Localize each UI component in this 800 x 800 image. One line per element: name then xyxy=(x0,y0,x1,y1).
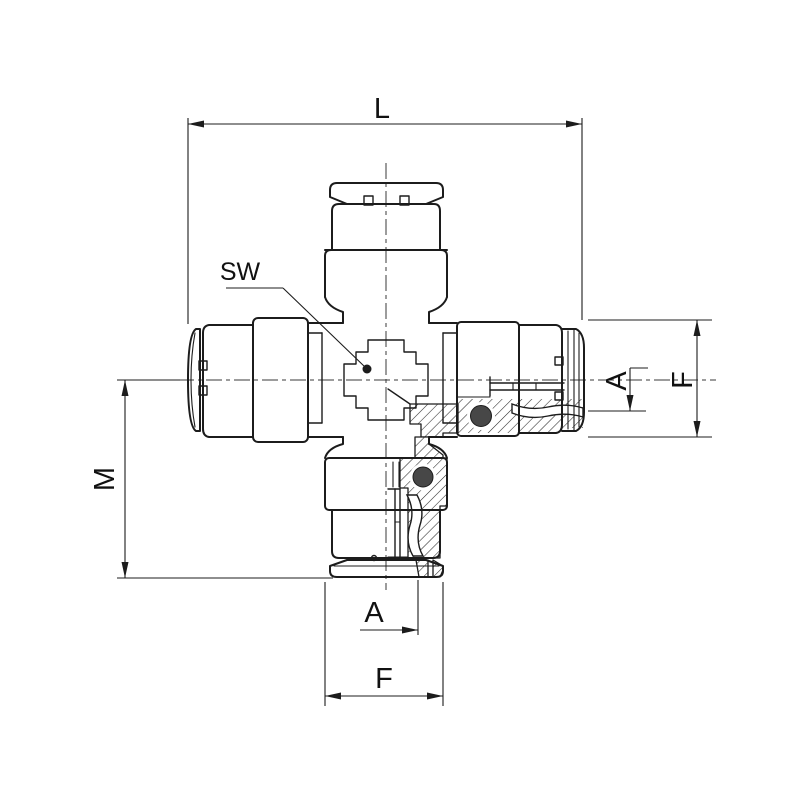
arrow-M-top xyxy=(122,380,129,396)
arrow-A-bottom xyxy=(402,627,418,634)
arrow-F-right-bottom xyxy=(694,421,701,437)
dim-label-A-right: A xyxy=(601,371,633,391)
arrow-F-bottom-right xyxy=(427,693,443,700)
dim-label-F-bottom: F xyxy=(375,663,393,695)
dim-label-L: L xyxy=(374,93,390,125)
arrow-F-bottom-left xyxy=(325,693,341,700)
arrow-F-right-top xyxy=(694,320,701,336)
arrow-M-bottom xyxy=(122,562,129,578)
hatch-corner-block xyxy=(410,404,458,437)
dimension-L: L xyxy=(188,93,582,324)
dim-label-F-right: F xyxy=(667,371,699,389)
sw-label: SW xyxy=(220,258,261,286)
dimension-F-bottom: F xyxy=(325,582,443,706)
left-collet-collar xyxy=(203,325,253,437)
hatch-bottom-cap-1 xyxy=(416,560,428,577)
arrow-L-right xyxy=(566,121,582,128)
arrow-L-left xyxy=(188,121,204,128)
sw-leader-line xyxy=(283,288,365,367)
section-hatching xyxy=(400,399,583,577)
technical-drawing-page: SW L M F A xyxy=(0,0,800,800)
bottom-neck-left xyxy=(325,437,343,458)
dim-label-M: M xyxy=(89,467,121,491)
centerlines xyxy=(178,163,716,590)
top-neck-right xyxy=(429,297,447,323)
label-SW: SW xyxy=(220,258,372,374)
dimension-M: M xyxy=(89,380,333,578)
sw-leader-dot xyxy=(363,365,372,374)
dim-label-A-bottom: A xyxy=(364,597,384,629)
dimension-A-bottom: A xyxy=(360,580,418,635)
section-boundary-diagonal xyxy=(388,389,410,404)
o-ring-bottom xyxy=(413,467,433,487)
top-neck-left xyxy=(325,297,343,323)
o-ring-right xyxy=(471,406,492,427)
dimension-A-right: A xyxy=(588,368,648,411)
cross-fitting-drawing: SW L M F A xyxy=(0,0,800,800)
arrow-A-right xyxy=(627,395,634,411)
